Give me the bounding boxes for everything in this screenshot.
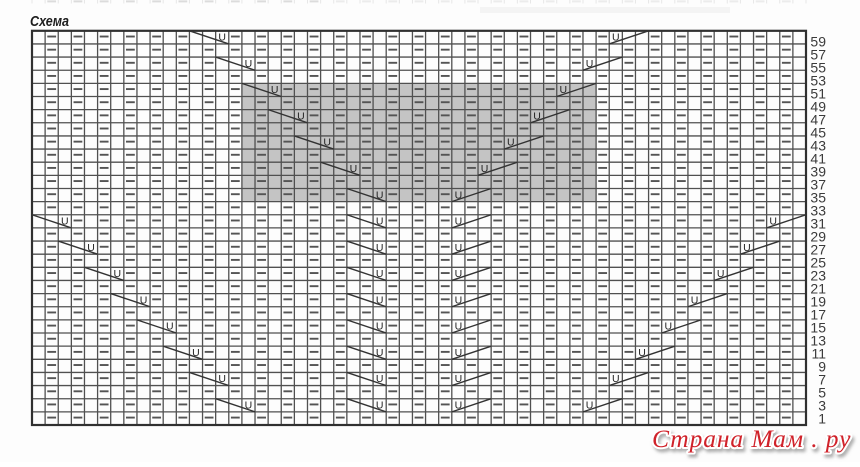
svg-text:U: U [297,110,305,122]
svg-text:U: U [376,321,384,333]
svg-text:U: U [533,110,541,122]
svg-text:U: U [140,294,148,306]
svg-text:U: U [245,58,253,70]
svg-text:U: U [664,321,672,333]
svg-text:U: U [376,373,384,385]
svg-text:U: U [717,268,725,280]
svg-text:U: U [61,216,69,228]
svg-text:U: U [376,347,384,359]
svg-text:U: U [638,347,646,359]
svg-text:U: U [455,294,463,306]
svg-text:U: U [245,400,253,412]
svg-text:U: U [113,268,121,280]
svg-text:Страна Мам . ру: Страна Мам . ру [652,424,851,453]
svg-text:U: U [376,216,384,228]
svg-text:U: U [376,268,384,280]
svg-text:U: U [376,189,384,201]
svg-text:U: U [455,373,463,385]
svg-text:U: U [271,84,279,96]
svg-text:U: U [455,347,463,359]
svg-text:U: U [586,400,594,412]
svg-text:U: U [586,58,594,70]
svg-text:U: U [323,137,331,149]
svg-text:U: U [743,242,751,254]
svg-text:U: U [455,321,463,333]
svg-text:U: U [218,373,226,385]
svg-text:U: U [376,294,384,306]
svg-text:U: U [87,242,95,254]
svg-text:U: U [612,32,620,44]
svg-text:U: U [769,216,777,228]
svg-text:U: U [455,216,463,228]
svg-text:U: U [192,347,200,359]
svg-text:U: U [691,294,699,306]
svg-text:U: U [350,163,358,175]
svg-text:U: U [455,189,463,201]
svg-text:U: U [455,400,463,412]
svg-text:U: U [481,163,489,175]
svg-text:U: U [376,242,384,254]
svg-text:U: U [455,268,463,280]
svg-text:U: U [166,321,174,333]
svg-text:U: U [376,400,384,412]
svg-text:U: U [560,84,568,96]
svg-text:Схема: Схема [30,13,69,30]
svg-text:U: U [507,137,515,149]
svg-text:U: U [218,32,226,44]
svg-text:U: U [455,242,463,254]
svg-text:U: U [612,373,620,385]
